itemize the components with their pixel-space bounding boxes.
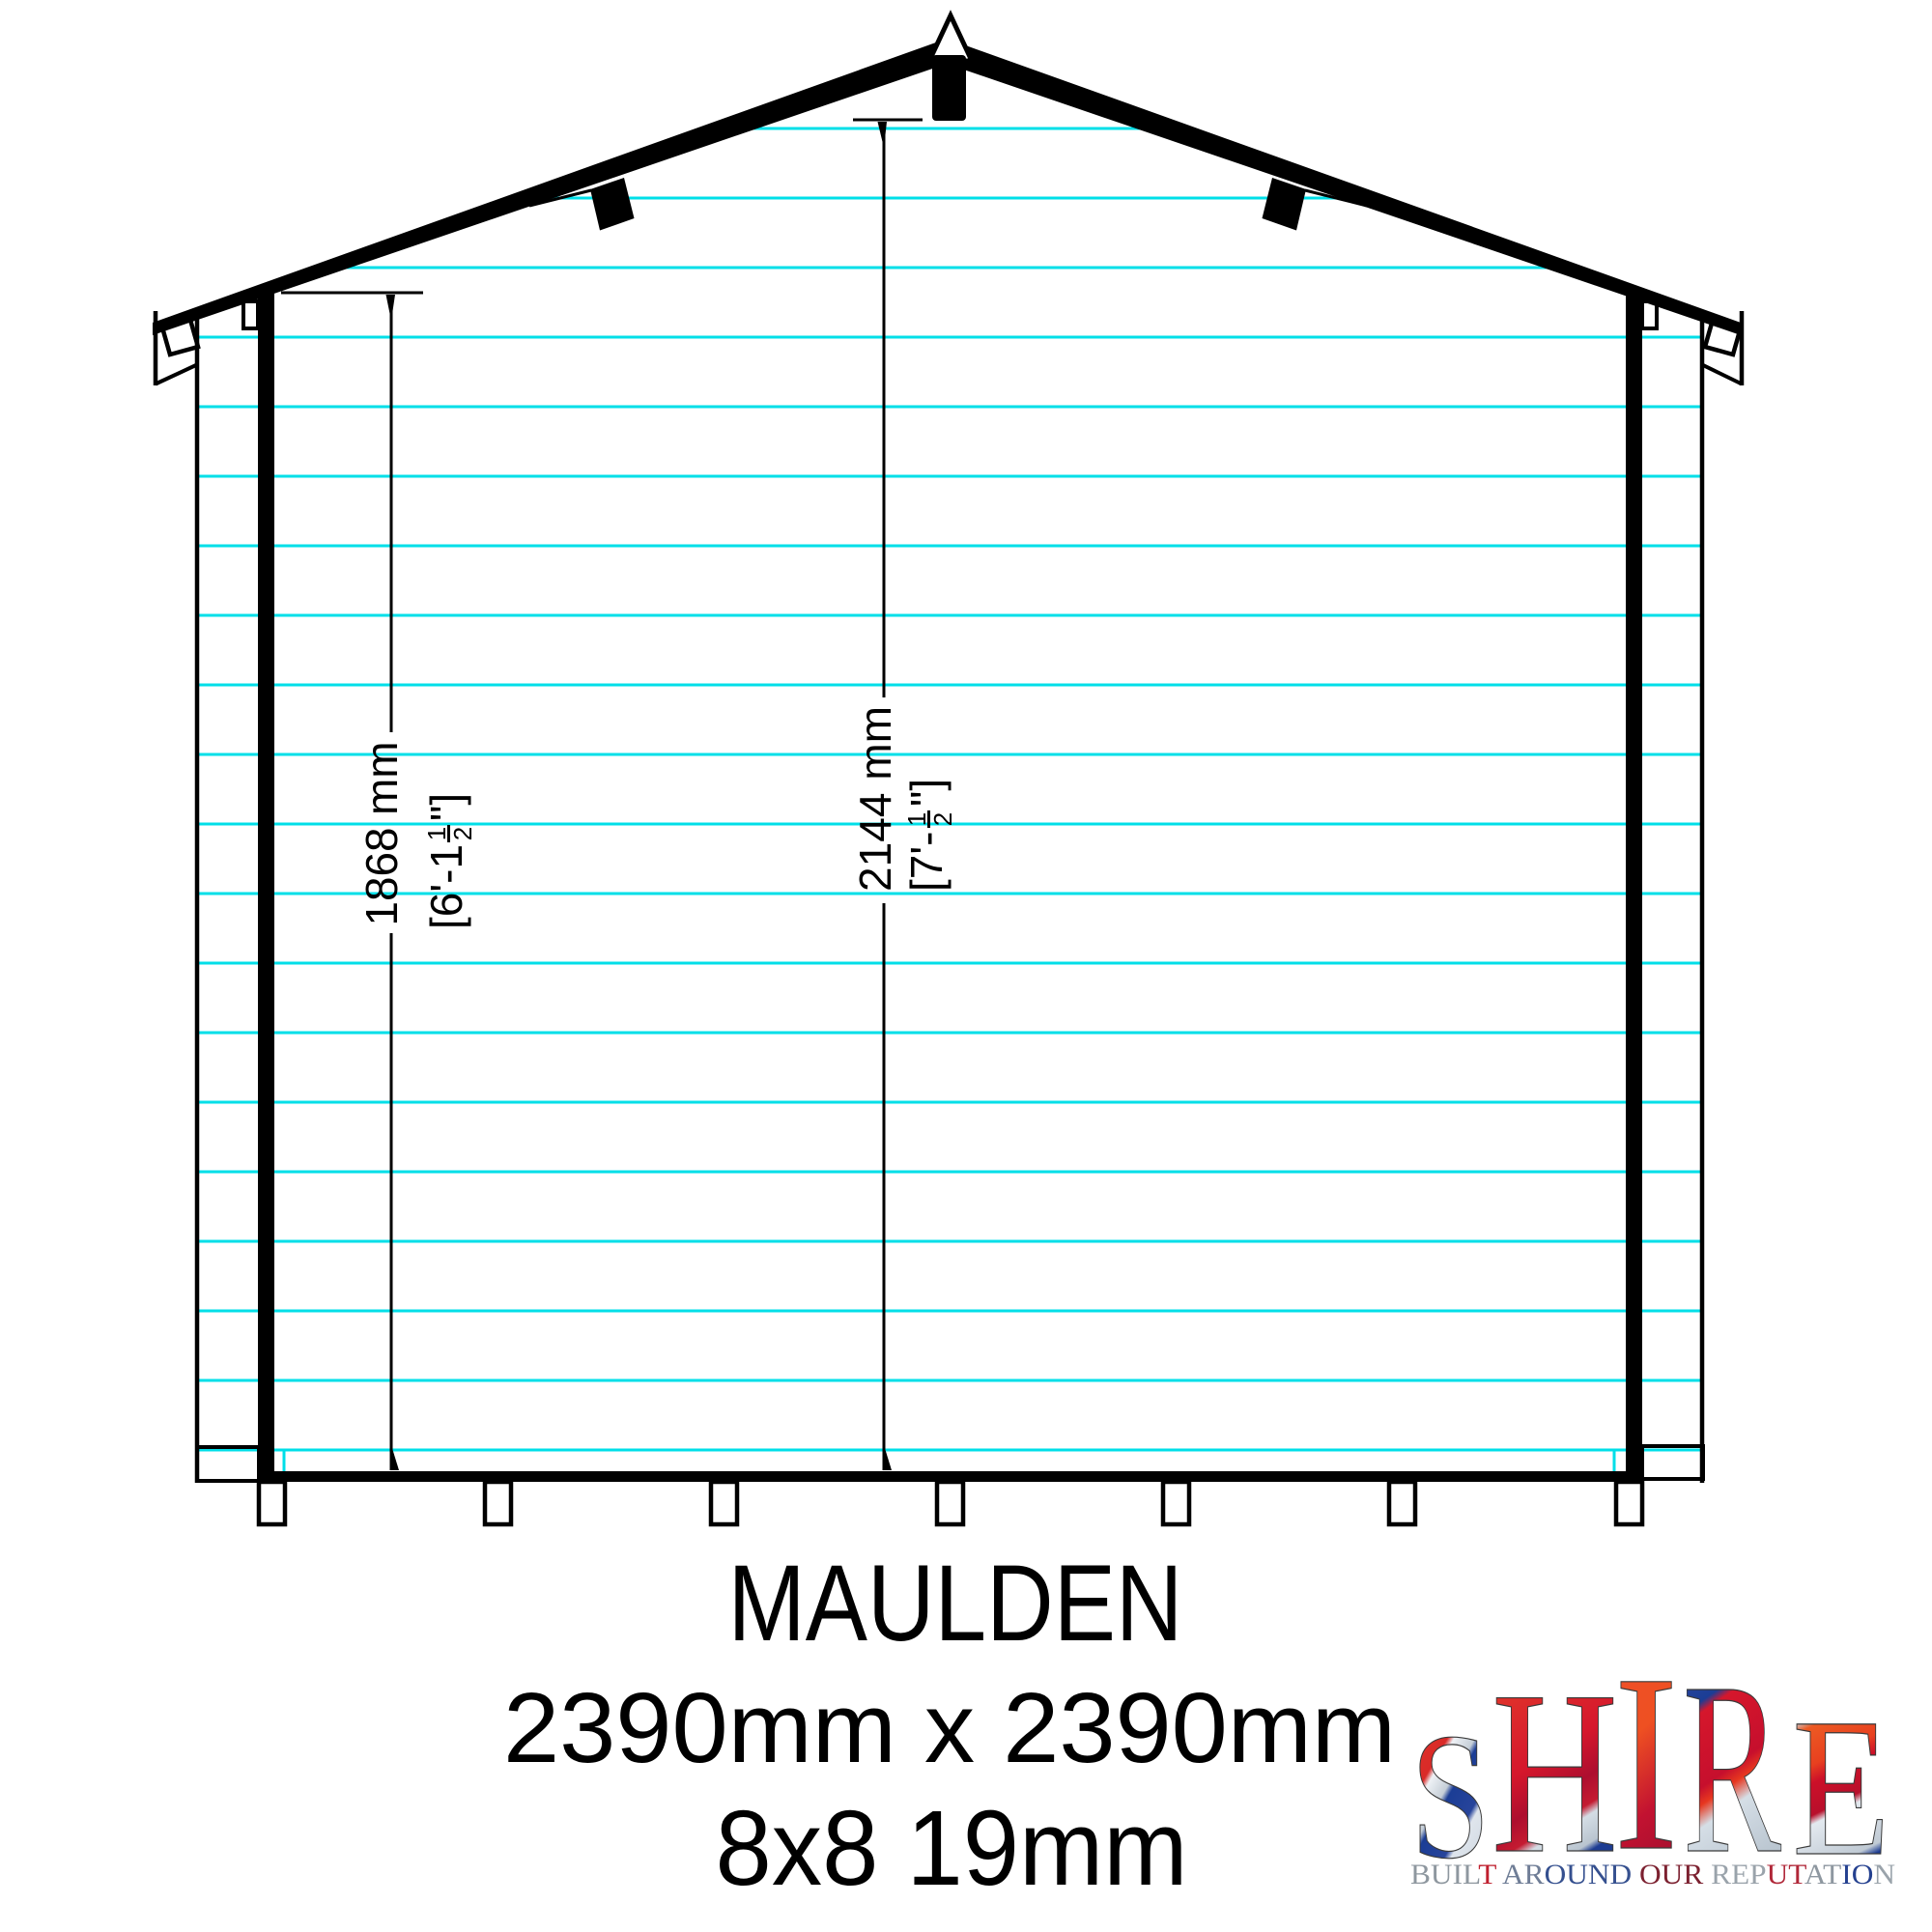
svg-text:1868 mm: 1868 mm	[356, 742, 407, 926]
svg-text:2390mm x 2390mm: 2390mm x 2390mm	[503, 1672, 1396, 1783]
svg-text:2: 2	[448, 827, 477, 840]
svg-text:8x8 19mm: 8x8 19mm	[716, 1789, 1188, 1908]
svg-text:MAULDEN: MAULDEN	[728, 1543, 1183, 1663]
svg-text:1: 1	[902, 812, 931, 826]
svg-text:"]: "]	[421, 793, 471, 821]
svg-text:[7'-: [7'-	[901, 832, 952, 892]
svg-text:BUILT AROUND OUR REPUTATION: BUILT AROUND OUR REPUTATION	[1410, 1859, 1895, 1890]
svg-text:1: 1	[422, 827, 451, 840]
svg-text:2144 mm: 2144 mm	[850, 706, 900, 892]
svg-text:"]: "]	[901, 779, 952, 807]
svg-text:2: 2	[928, 812, 957, 826]
svg-text:[6'-1: [6'-1	[421, 844, 471, 929]
